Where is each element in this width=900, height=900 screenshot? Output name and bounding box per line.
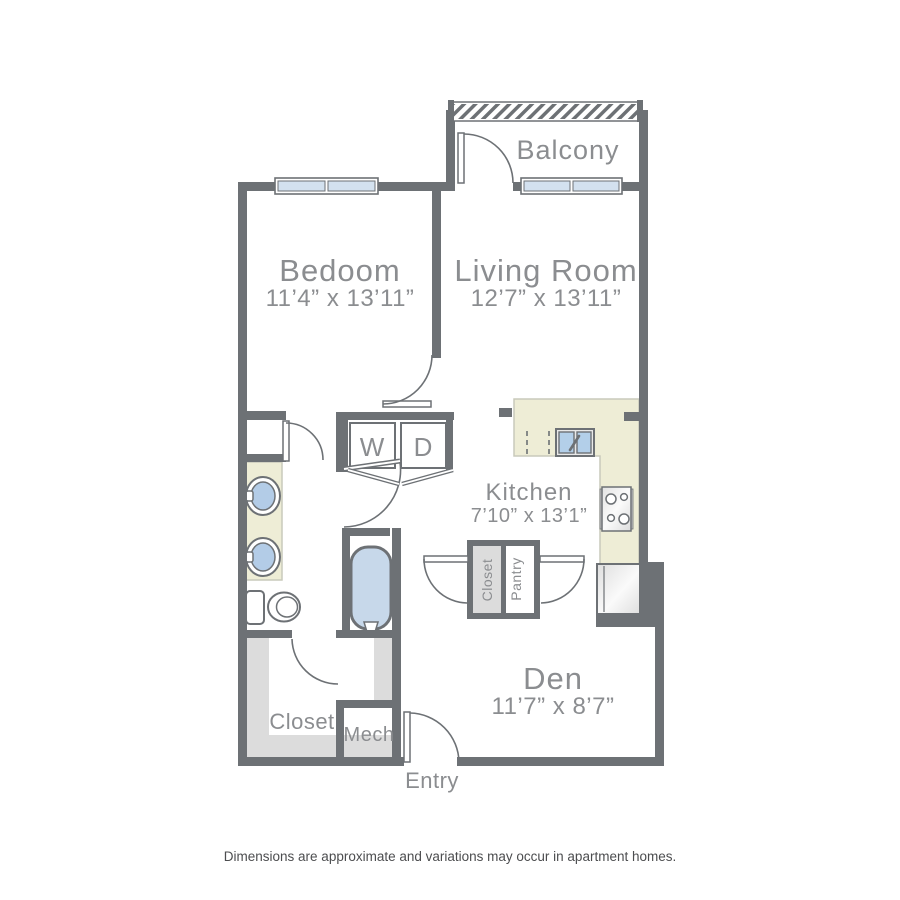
den-label: Den (523, 661, 583, 696)
living-room-dims: 12’7” x 13’11” (471, 285, 622, 312)
hall-closet-door (424, 556, 468, 603)
balcony-railing (448, 100, 643, 122)
walkin-closet-door (292, 639, 338, 684)
toilet-icon (246, 591, 300, 624)
mech-label: Mech (344, 724, 395, 746)
kitchen-label: Kitchen (485, 479, 572, 506)
bathtub-icon (351, 547, 391, 637)
pantry-door (540, 556, 584, 603)
entry-door (404, 712, 459, 762)
living-room-label: Living Room (454, 253, 637, 288)
living-room-window (521, 178, 622, 194)
pantry-label: Pantry (508, 557, 524, 600)
entry-label: Entry (405, 768, 459, 793)
kitchen-dims: 7’10” x 13’1” (471, 505, 588, 527)
refrigerator-icon (597, 564, 641, 614)
disclaimer-text: Dimensions are approximate and variation… (224, 849, 676, 864)
stove-icon (600, 487, 633, 531)
washer-label: W (360, 432, 385, 462)
kitchen-sink-icon (556, 429, 594, 456)
floor-plan-svg: W D (0, 0, 900, 900)
balcony-door (458, 133, 513, 183)
bathroom-door (283, 421, 323, 461)
den-dims: 11’7” x 8’7” (492, 693, 615, 720)
bedroom-door (383, 355, 432, 407)
bedroom-window (275, 178, 378, 194)
hall-closet-label: Closet (479, 559, 495, 602)
dryer-label: D (414, 432, 433, 462)
bedroom-label: Bedoom (279, 253, 400, 288)
walkin-closet-label: Closet (269, 709, 334, 734)
balcony-label: Balcony (516, 135, 619, 165)
floor-plan: W D (0, 0, 900, 900)
bedroom-dims: 11’4” x 13’11” (266, 285, 415, 312)
